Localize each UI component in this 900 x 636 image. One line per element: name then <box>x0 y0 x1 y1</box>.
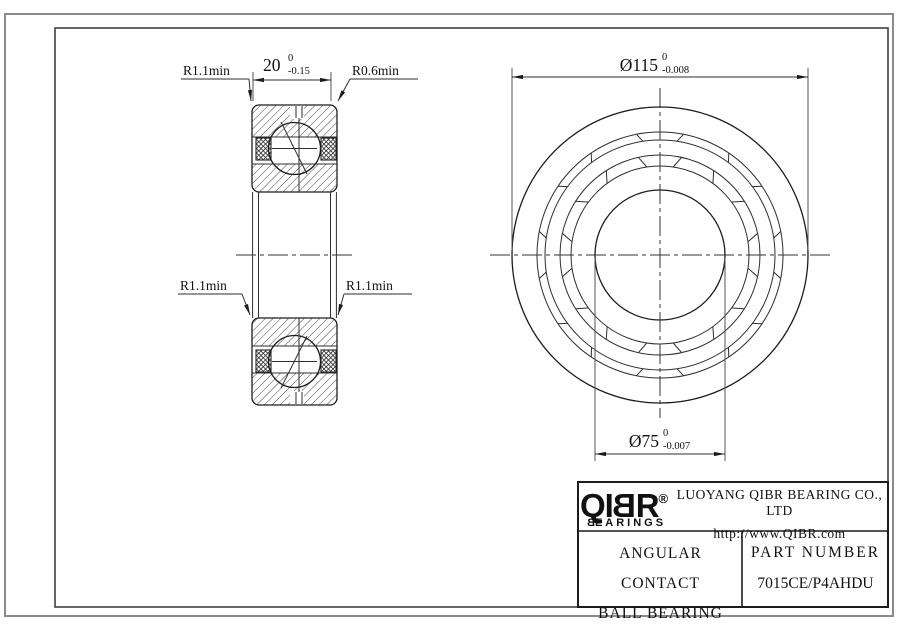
product-line2: BALL BEARING <box>579 599 742 629</box>
part-number-cell: PART NUMBER 7015CE/P4AHDU <box>743 537 888 599</box>
width-value: 20 <box>263 55 281 75</box>
cross-section-bottom <box>252 318 337 405</box>
cage-crosshatch <box>321 350 336 372</box>
od-tol-upper: 0 <box>662 52 667 63</box>
bore-value: Ø75 <box>629 431 659 451</box>
product-line1: ANGULAR CONTACT <box>579 539 742 599</box>
logo-subtext-mirrored-b: B <box>584 517 595 529</box>
radius-label: R1.1min <box>183 63 230 78</box>
radius-label: R1.1min <box>180 278 227 293</box>
company-info: LUOYANG QIBR BEARING CO., LTD http://www… <box>673 487 886 542</box>
part-number-value: 7015CE/P4AHDU <box>743 568 888 599</box>
bore-tol-lower: -0.007 <box>663 441 690 452</box>
cross-section-top <box>252 105 337 192</box>
registered-trademark-icon: ® <box>659 491 669 506</box>
radius-label: R0.6min <box>352 63 399 78</box>
company-name: LUOYANG QIBR BEARING CO., LTD <box>673 487 886 519</box>
qibr-logo: QIBR® <box>580 484 668 521</box>
cage-crosshatch <box>321 138 336 160</box>
drawing-page: 20 0 -0.15 R1.1min R0.6min R1.1min R1.1m… <box>0 0 900 636</box>
logo-subtext: EARINGS <box>595 517 666 529</box>
radius-label: R1.1min <box>346 278 393 293</box>
part-number-label: PART NUMBER <box>743 537 888 568</box>
product-description: ANGULAR CONTACT BALL BEARING <box>579 539 742 629</box>
od-value: Ø115 <box>620 55 658 75</box>
od-tol-lower: -0.008 <box>662 65 689 76</box>
width-tol-lower: -0.15 <box>288 66 310 77</box>
width-tol-upper: 0 <box>288 53 293 64</box>
bore-tol-upper: 0 <box>663 428 668 439</box>
qibr-logo-subtext: BEARINGS <box>584 517 666 529</box>
